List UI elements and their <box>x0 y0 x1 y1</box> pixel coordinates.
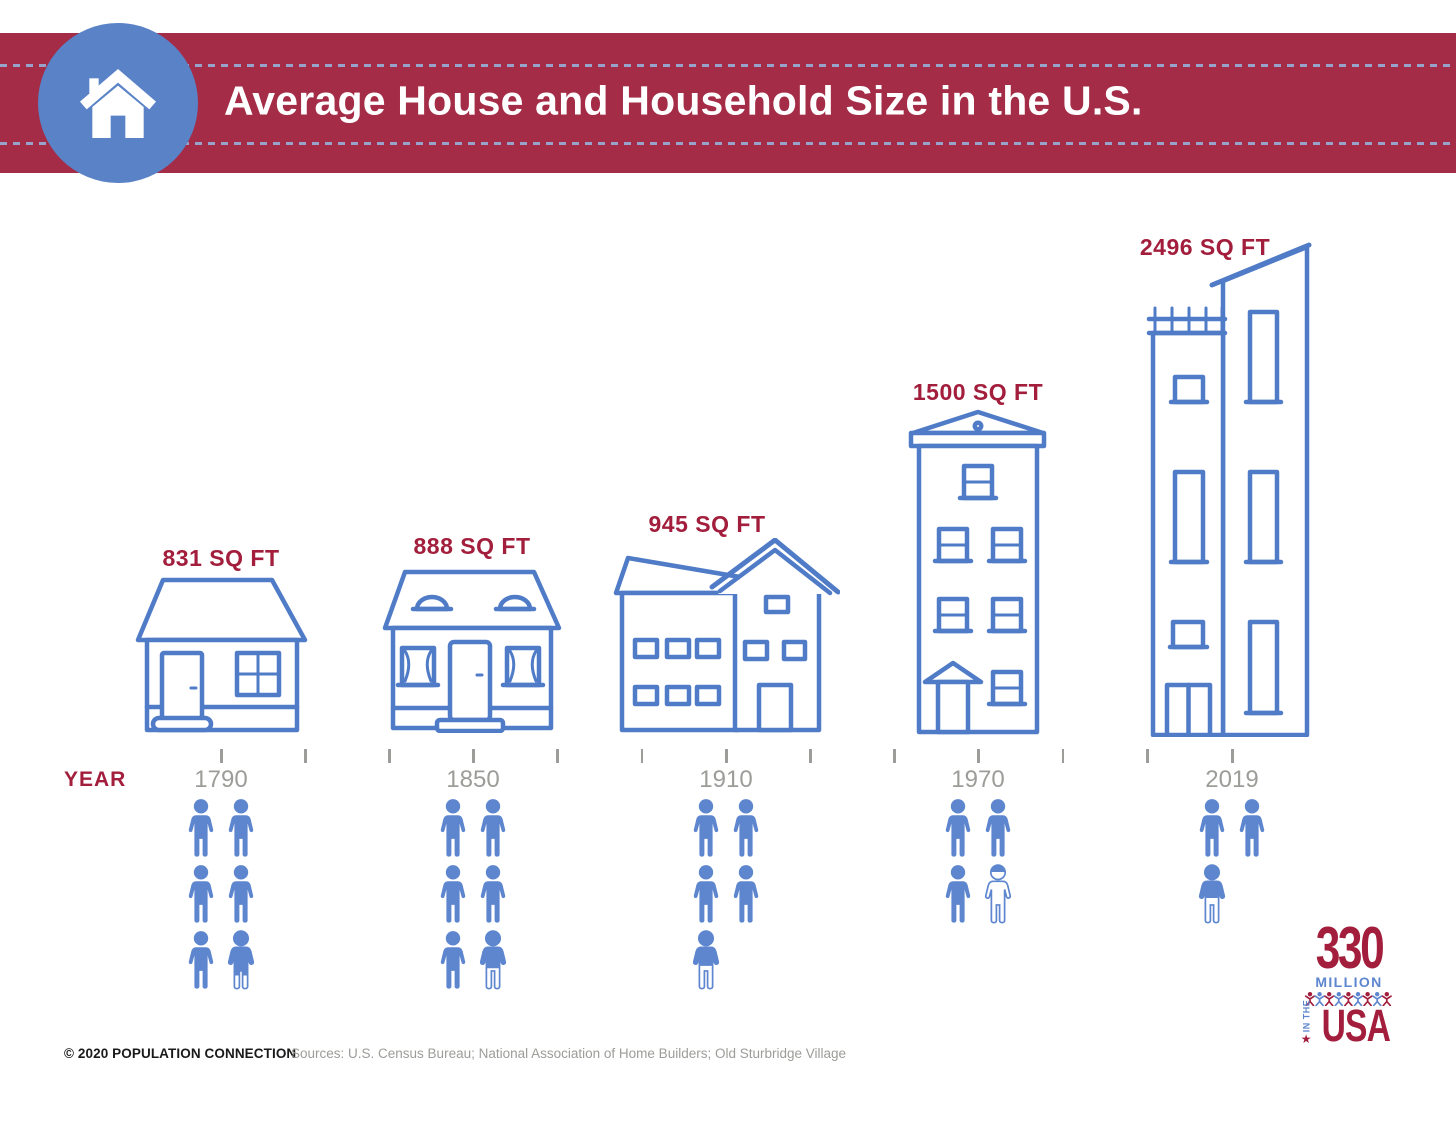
logo-bottom: IN THE ★ USA <box>1303 1007 1395 1045</box>
person-icon <box>1235 798 1269 860</box>
person-icon <box>184 798 218 860</box>
timeline-tick <box>472 749 475 763</box>
year-label-1790: 1790 <box>194 766 247 794</box>
person-icon <box>476 864 510 926</box>
copyright-text: © 2020 POPULATION CONNECTION <box>64 1046 296 1061</box>
person-icon <box>729 798 763 860</box>
timeline-tick <box>220 749 223 763</box>
sqft-label-1970: 1500 SQ FT <box>913 379 1043 406</box>
person-icon <box>476 930 510 992</box>
dashed-line-top <box>0 64 1456 67</box>
person-icon <box>184 864 218 926</box>
person-icon <box>689 798 723 860</box>
infographic: Average House and Household Size in the … <box>0 0 1456 1125</box>
person-icon <box>689 930 723 992</box>
person-icon <box>476 798 510 860</box>
home-icon <box>78 66 158 140</box>
sources-text: Sources: U.S. Census Bureau; National As… <box>291 1046 846 1061</box>
timeline-tick <box>1146 749 1149 763</box>
person-icon <box>729 864 763 926</box>
house-illustration-2019 <box>1144 240 1312 737</box>
year-label-2019: 2019 <box>1205 766 1258 794</box>
title-banner: Average House and Household Size in the … <box>0 33 1456 173</box>
timeline-tick <box>641 749 644 763</box>
house-illustration-1790 <box>133 574 311 736</box>
timeline-tick <box>725 749 728 763</box>
sqft-label-1790: 831 SQ FT <box>163 545 280 572</box>
household-icons-2019 <box>1195 798 1271 926</box>
timeline-tick <box>556 749 559 763</box>
person-icon <box>436 864 470 926</box>
logo-number: 330 <box>1311 924 1386 973</box>
person-icon <box>436 798 470 860</box>
timeline-tick <box>1062 749 1065 763</box>
logo-in-the: IN THE <box>1301 1000 1311 1033</box>
household-icons-1910 <box>689 798 765 992</box>
year-label-1910: 1910 <box>699 766 752 794</box>
person-icon <box>1195 798 1229 860</box>
person-icon <box>1195 864 1229 926</box>
sqft-label-1850: 888 SQ FT <box>414 533 531 560</box>
page-title: Average House and Household Size in the … <box>224 78 1143 125</box>
timeline-tick <box>977 749 980 763</box>
household-icons-1850 <box>436 798 512 992</box>
timeline-tick <box>809 749 812 763</box>
house-badge <box>38 23 198 183</box>
person-icon <box>941 864 975 926</box>
logo-usa: USA <box>1322 1006 1391 1047</box>
person-icon <box>224 930 258 992</box>
logo-side: IN THE ★ <box>1299 1007 1313 1045</box>
dashed-line-bottom <box>0 142 1456 145</box>
person-icon <box>981 864 1015 926</box>
person-icon <box>436 930 470 992</box>
person-icon <box>224 864 258 926</box>
house-illustration-1970 <box>905 406 1051 737</box>
star-icon: ★ <box>1301 1033 1312 1045</box>
person-icon <box>689 864 723 926</box>
timeline-tick <box>388 749 391 763</box>
house-illustration-1910 <box>612 538 840 734</box>
household-icons-1790 <box>184 798 260 992</box>
household-icons-1970 <box>941 798 1017 926</box>
year-label-1850: 1850 <box>446 766 499 794</box>
person-icon <box>981 798 1015 860</box>
330-million-usa-logo: 330 MILLION IN THE ★ USA <box>1303 926 1395 1045</box>
person-icon <box>224 798 258 860</box>
house-illustration-1850 <box>382 565 562 733</box>
timeline-tick <box>1231 749 1234 763</box>
person-icon <box>184 930 218 992</box>
timeline-tick <box>304 749 307 763</box>
year-label-1970: 1970 <box>951 766 1004 794</box>
timeline-tick <box>893 749 896 763</box>
person-icon <box>941 798 975 860</box>
year-axis-label: YEAR <box>64 768 126 792</box>
sqft-label-1910: 945 SQ FT <box>649 511 766 538</box>
